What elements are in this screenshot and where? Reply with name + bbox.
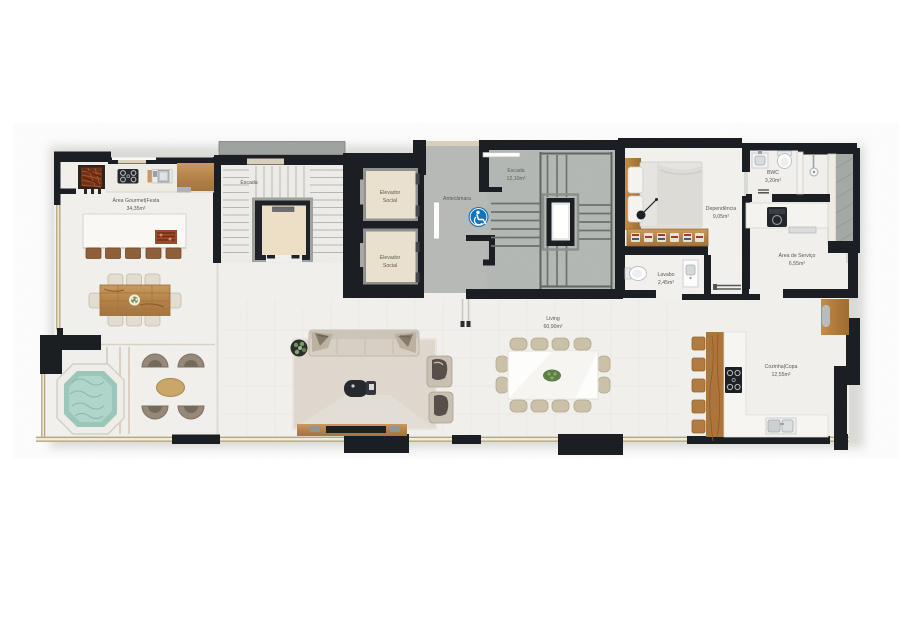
svg-text:Elevador: Elevador <box>380 190 401 196</box>
svg-text:12,55m²: 12,55m² <box>771 372 790 378</box>
svg-text:12,10m²: 12,10m² <box>506 176 525 182</box>
svg-text:3,20m²: 3,20m² <box>765 178 781 184</box>
svg-text:Área de Serviço: Área de Serviço <box>779 252 816 259</box>
svg-text:Escada: Escada <box>507 168 524 174</box>
svg-text:60,90m²: 60,90m² <box>543 324 562 330</box>
svg-text:6,55m²: 6,55m² <box>789 261 805 267</box>
svg-text:Cozinha|Copa: Cozinha|Copa <box>765 364 798 370</box>
svg-text:Social: Social <box>383 198 397 204</box>
svg-text:Área Gourmet|Festa: Área Gourmet|Festa <box>113 197 160 204</box>
svg-text:Social: Social <box>383 263 397 269</box>
svg-text:9,05m²: 9,05m² <box>713 214 729 220</box>
svg-text:Antecâmara: Antecâmara <box>443 196 471 202</box>
svg-text:Living: Living <box>546 316 560 322</box>
svg-text:Lavabo: Lavabo <box>657 272 674 278</box>
svg-text:BWC: BWC <box>767 170 779 176</box>
svg-text:2,45m²: 2,45m² <box>658 280 674 286</box>
svg-text:Elevador: Elevador <box>380 255 401 261</box>
svg-text:34,35m²: 34,35m² <box>126 206 145 212</box>
svg-text:Dependência: Dependência <box>706 206 737 212</box>
svg-text:Escada: Escada <box>240 180 257 186</box>
